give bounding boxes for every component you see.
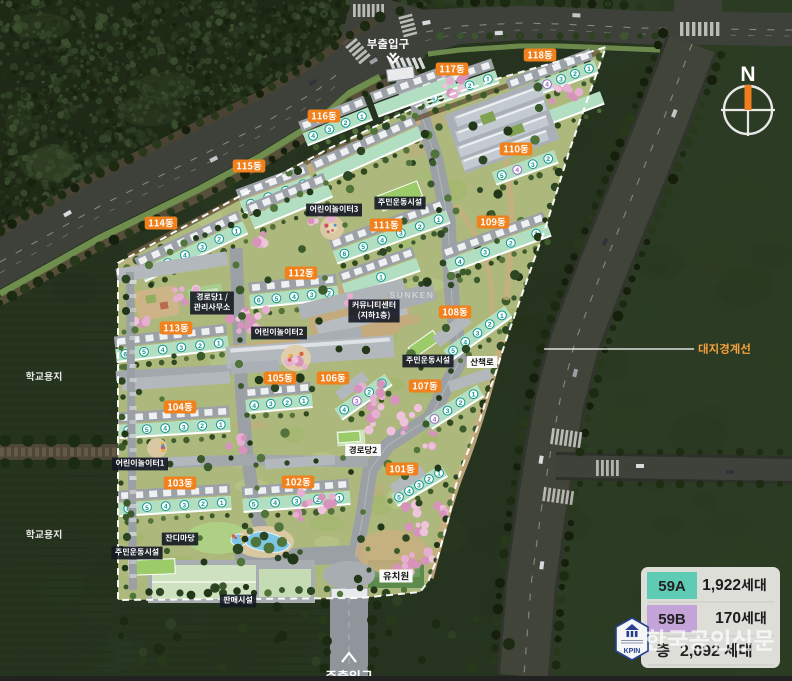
svg-text:1: 1 [337, 495, 341, 502]
svg-text:1: 1 [472, 392, 476, 399]
svg-text:59B: 59B [658, 611, 686, 628]
svg-text:3: 3 [179, 345, 183, 352]
svg-text:2: 2 [468, 83, 472, 90]
svg-text:3: 3 [531, 162, 535, 169]
svg-text:4: 4 [342, 407, 346, 414]
svg-text:2: 2 [509, 240, 513, 247]
svg-text:6: 6 [257, 298, 261, 305]
svg-text:2: 2 [573, 71, 577, 78]
svg-text:SUNKEN: SUNKEN [390, 290, 435, 300]
svg-text:2: 2 [488, 322, 492, 329]
svg-text:2: 2 [418, 224, 422, 231]
svg-text:4: 4 [161, 347, 165, 354]
svg-text:1: 1 [235, 229, 239, 236]
svg-text:1: 1 [219, 422, 223, 429]
svg-text:4: 4 [407, 489, 411, 496]
svg-text:KPIN: KPIN [624, 648, 641, 655]
svg-text:6: 6 [343, 251, 347, 258]
svg-text:170: 170 [715, 610, 741, 627]
svg-text:5: 5 [361, 244, 365, 251]
svg-text:5: 5 [145, 505, 149, 512]
svg-text:1: 1 [587, 66, 591, 73]
svg-text:5: 5 [500, 173, 504, 180]
svg-text:5: 5 [142, 349, 146, 356]
svg-text:4: 4 [380, 237, 384, 244]
svg-text:1: 1 [437, 217, 441, 224]
svg-text:2,092: 2,092 [680, 643, 720, 660]
svg-text:59A: 59A [658, 578, 686, 595]
svg-text:2: 2 [459, 400, 463, 407]
svg-text:1: 1 [437, 471, 441, 478]
svg-text:4: 4 [164, 504, 168, 511]
svg-text:2: 2 [217, 237, 221, 244]
svg-text:4: 4 [433, 416, 437, 423]
svg-text:4: 4 [252, 403, 256, 410]
svg-text:4: 4 [311, 133, 315, 140]
svg-text:3: 3 [200, 245, 204, 252]
svg-text:1: 1 [302, 398, 306, 405]
svg-text:4: 4 [515, 167, 519, 174]
svg-text:1: 1 [360, 114, 364, 121]
svg-text:3: 3 [295, 499, 299, 506]
svg-text:3: 3 [446, 408, 450, 415]
svg-text:3: 3 [417, 483, 421, 490]
svg-text:1: 1 [217, 341, 221, 348]
svg-text:1,922: 1,922 [702, 577, 741, 594]
svg-text:2: 2 [327, 290, 331, 297]
svg-text:2: 2 [200, 423, 204, 430]
svg-text:4: 4 [273, 500, 277, 507]
svg-text:1: 1 [379, 275, 383, 282]
svg-text:2: 2 [285, 400, 289, 407]
svg-text:2: 2 [198, 343, 202, 350]
svg-text:3: 3 [182, 502, 186, 509]
svg-text:4: 4 [545, 82, 549, 89]
svg-text:3: 3 [399, 231, 403, 238]
svg-text:2: 2 [201, 501, 205, 508]
svg-text:3: 3 [269, 401, 273, 408]
svg-text:5: 5 [397, 495, 401, 502]
svg-text:4: 4 [458, 259, 462, 266]
svg-text:5: 5 [252, 502, 256, 509]
svg-text:2: 2 [427, 477, 431, 484]
svg-text:3: 3 [182, 424, 186, 431]
svg-text:2: 2 [546, 156, 550, 163]
svg-text:3: 3 [328, 127, 332, 134]
svg-text:1: 1 [500, 313, 504, 320]
svg-text:5: 5 [275, 296, 279, 303]
svg-text:3: 3 [310, 292, 314, 299]
svg-text:4: 4 [292, 294, 296, 301]
svg-text:5: 5 [451, 348, 455, 355]
svg-text:3: 3 [559, 76, 563, 83]
svg-text:4: 4 [163, 426, 167, 433]
svg-text:3: 3 [483, 250, 487, 257]
svg-text:2: 2 [344, 120, 348, 127]
svg-text:N: N [740, 63, 755, 86]
svg-text:5: 5 [145, 427, 149, 434]
svg-text:3: 3 [476, 331, 480, 338]
svg-text:1: 1 [220, 500, 224, 507]
svg-text:3: 3 [355, 398, 359, 405]
